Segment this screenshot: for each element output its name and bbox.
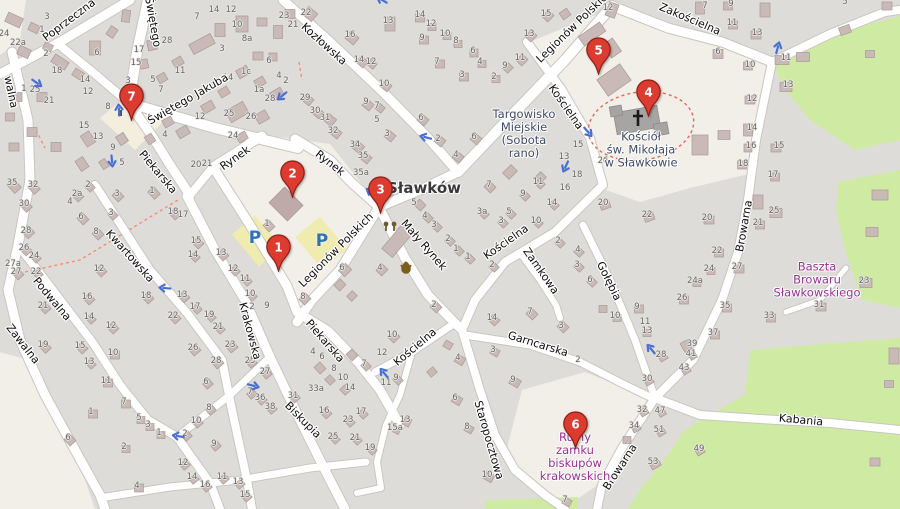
house-number: 7 <box>527 307 532 317</box>
house-number: 5 <box>136 413 141 423</box>
house-number: 12 <box>366 57 377 67</box>
house-number: 23 <box>343 415 354 425</box>
svg-text:6: 6 <box>571 418 579 432</box>
house-number: 21 <box>350 433 361 443</box>
house-number: 3 <box>114 189 119 199</box>
house-number: 15 <box>75 341 86 351</box>
house-number: 19 <box>204 310 215 320</box>
house-number: 11 <box>727 18 738 28</box>
house-number: 12 <box>106 321 117 331</box>
house-number: 13 <box>524 29 535 39</box>
house-number: 13 <box>177 290 188 300</box>
house-number: 7 <box>247 387 252 397</box>
oneway-arrow-icon <box>372 367 389 384</box>
house-number: 11 <box>533 177 544 187</box>
street-label-browarna: Browarna <box>733 199 755 253</box>
house-number: 23 <box>279 11 290 21</box>
poi-label-kosciol: Kościółśw. Mikołajaw Sławkowie <box>604 131 677 170</box>
house-number: 10 <box>108 348 119 358</box>
house-number: 16 <box>746 141 757 151</box>
house-number: 19 <box>38 340 49 350</box>
house-number: 33 <box>764 311 775 321</box>
house-number: 28 <box>265 94 276 104</box>
house-number: 12 <box>178 458 189 468</box>
house-number: 20 <box>702 213 713 223</box>
oneway-arrow-icon <box>416 135 432 148</box>
house-number: 4 <box>310 347 315 357</box>
oneway-arrow-icon <box>563 161 578 178</box>
house-number: 7 <box>361 359 366 369</box>
house-number: 2 <box>43 49 48 59</box>
house-number: 7 <box>374 101 379 111</box>
house-number: 11 <box>381 378 392 388</box>
house-number: 17 <box>134 45 145 55</box>
house-number: 6 <box>715 47 720 57</box>
house-number: 2 <box>249 302 254 312</box>
house-number: 32 <box>637 405 648 415</box>
street-label-świętego: Świętego <box>142 0 164 48</box>
street-label-garncarska: Garncarska <box>506 329 570 360</box>
house-number: 1 <box>21 84 26 94</box>
house-number: 7 <box>158 85 163 95</box>
poi-label-line: krakowskich <box>540 470 611 483</box>
house-number: 53 <box>648 457 659 467</box>
house-number: 13 <box>642 326 653 336</box>
house-number: 14 <box>354 55 365 65</box>
oneway-arrow-icon <box>169 435 185 447</box>
house-number: 34 <box>350 140 361 150</box>
house-number: 34 <box>629 421 640 431</box>
street-label-podwalna: Podwalna <box>30 275 74 324</box>
house-number: 21 <box>44 96 55 106</box>
house-number: 4 <box>162 130 167 140</box>
house-number: 16 <box>345 30 356 40</box>
house-number: 12 <box>426 19 437 29</box>
house-number: 21 <box>213 322 224 332</box>
oneway-arrow-icon <box>157 287 172 298</box>
house-number: 14 <box>80 75 91 85</box>
house-number: 16 <box>200 480 211 490</box>
map-marker-3[interactable]: 3 <box>367 176 394 214</box>
house-number: 14 <box>223 73 234 83</box>
street-label-browarna: Browarna <box>600 442 639 493</box>
house-number: 18 <box>141 291 152 301</box>
svg-text:4: 4 <box>644 86 652 100</box>
house-number: 18 <box>52 66 63 76</box>
street-label-świętego-jakuba: Świętego Jakuba <box>145 71 230 128</box>
house-number: 12 <box>228 264 239 274</box>
svg-text:5: 5 <box>594 44 602 58</box>
poi-label-line: Kościół <box>604 131 677 144</box>
house-number: 12 <box>226 5 237 15</box>
map-canvas[interactable]: PoprzecznawalnaŚwiętegoŚwiętego JakubaKo… <box>0 0 900 509</box>
house-number: 2 <box>445 234 450 244</box>
house-number: 26 <box>19 243 30 253</box>
house-number: 11 <box>217 472 228 482</box>
house-number: 10 <box>245 289 256 299</box>
house-number: 1 <box>149 186 154 196</box>
house-number: 20 <box>191 160 202 170</box>
oneway-arrow-icon <box>639 343 656 360</box>
street-label-poprzeczna: Poprzeczna <box>40 0 98 44</box>
poi-label-line: w Sławkowie <box>604 157 677 170</box>
house-number: 39 <box>687 339 698 349</box>
house-number: 31 <box>814 300 825 310</box>
house-number: 13 <box>783 80 794 90</box>
street-label-rynek: Rynek <box>313 148 348 179</box>
house-number: 22a <box>10 38 26 48</box>
house-number: 9 <box>520 189 525 199</box>
house-number: 2 <box>121 442 126 452</box>
house-number: 13 <box>383 16 394 26</box>
house-number: 5 <box>842 0 847 7</box>
house-number: 27a <box>5 259 21 269</box>
street-label-zawalna: Zawalna <box>3 322 42 367</box>
house-number: 11 <box>101 376 112 386</box>
poi-label-line: Miejskie <box>493 121 556 134</box>
house-number: 27 <box>732 262 743 272</box>
map-marker-2[interactable]: 2 <box>279 160 306 198</box>
map-overlay-layer: PoprzecznawalnaŚwiętegoŚwiętego JakubaKo… <box>0 0 900 509</box>
house-number: 15 <box>191 236 202 246</box>
house-number: 8 <box>206 403 211 413</box>
house-number: 2 <box>283 76 288 86</box>
house-number: 18 <box>738 159 749 169</box>
svg-text:7: 7 <box>127 90 135 104</box>
house-number: 26 <box>246 112 257 122</box>
house-number: 20 <box>598 198 609 208</box>
house-number: 14 <box>84 312 95 322</box>
poi-label-line: św. Mikołaja <box>604 144 677 157</box>
house-number: 22 <box>168 311 179 321</box>
house-number: 27 <box>11 267 22 277</box>
house-number: 26 <box>598 156 609 166</box>
house-number: 15 <box>240 490 251 500</box>
house-number: 14 <box>345 383 356 393</box>
house-number: 22 <box>712 246 723 256</box>
house-number: 7 <box>486 180 491 190</box>
house-number: 6 <box>339 263 344 273</box>
house-number: 13 <box>84 357 95 367</box>
house-number: 4 <box>477 57 482 67</box>
street-label-kozłowska: Kozłowska <box>299 20 350 68</box>
map-marker-6[interactable]: 6 <box>562 411 589 449</box>
house-number: 13 <box>752 28 763 38</box>
house-number: 14 <box>209 5 220 15</box>
house-number: 13 <box>216 248 227 258</box>
house-number: 24 <box>704 264 715 274</box>
street-label-kościelna: Kościelna <box>481 222 531 262</box>
poi-label-line: biskupów <box>540 457 611 470</box>
house-number: 2 <box>431 300 436 310</box>
house-number: 15 <box>131 58 142 68</box>
house-number: 3 <box>145 420 150 430</box>
house-number: 17 <box>356 407 367 417</box>
house-number: 15 <box>541 9 552 19</box>
house-number: 24a <box>687 276 703 286</box>
house-number: 7 <box>121 397 126 407</box>
house-number: 9 <box>502 61 507 71</box>
house-number: 9 <box>634 302 639 312</box>
house-number: 8 <box>93 227 98 237</box>
house-number: 2 <box>555 236 560 246</box>
house-number: 3 <box>431 220 436 230</box>
house-number: 3 <box>498 216 503 226</box>
house-number: 10 <box>379 79 390 89</box>
house-number: 6 <box>94 48 99 58</box>
house-number: 13 <box>93 132 104 142</box>
house-number: 2 <box>182 429 187 439</box>
house-number: 10 <box>482 470 493 480</box>
house-number: 13 <box>233 477 244 487</box>
house-number: 5 <box>411 198 416 208</box>
house-number: 1 <box>465 252 470 262</box>
house-number: 10 <box>191 416 202 426</box>
street-label-zakościelna: Zakościelna <box>657 0 722 38</box>
house-number: 6 <box>203 377 208 387</box>
house-number: 14 <box>547 198 558 208</box>
house-number: 14 <box>188 250 199 260</box>
street-label-kwartowska: Kwartowska <box>103 227 157 285</box>
house-number: 9 <box>510 375 515 385</box>
house-number: 1 <box>88 407 93 417</box>
house-number: 49 <box>694 444 705 454</box>
house-number: 12 <box>603 3 614 13</box>
house-number: 13 <box>559 152 570 162</box>
house-number: 26 <box>188 343 199 353</box>
map-marker-5[interactable]: 5 <box>585 37 612 75</box>
house-number: 4 <box>422 211 427 221</box>
street-label-kościelna: Kościelna <box>391 325 439 368</box>
parking-icon: P <box>249 228 261 248</box>
house-number: 2 <box>489 260 494 270</box>
street-label-mały-rynek: Mały Rynek <box>398 217 449 273</box>
svg-text:1: 1 <box>274 241 282 255</box>
house-number: 7 <box>562 495 567 505</box>
house-number: 9 <box>110 143 115 153</box>
house-number: 6 <box>319 352 324 362</box>
house-number: 12 <box>195 112 206 122</box>
house-number: 10 <box>232 20 243 30</box>
house-number: 32 <box>328 126 339 136</box>
house-number: 35 <box>358 151 369 161</box>
house-number: 6 <box>78 212 83 222</box>
house-number: 47 <box>655 406 666 416</box>
house-number: 11 <box>240 274 251 284</box>
house-number: 6 <box>418 113 423 123</box>
house-number: 27 <box>260 367 271 377</box>
house-number: 16 <box>319 406 330 416</box>
map-marker-7[interactable]: 7 <box>118 83 145 121</box>
house-number: 30 <box>642 374 653 384</box>
house-number: 23 <box>225 340 236 350</box>
street-label-piekarska: Piekarska <box>136 148 180 196</box>
house-number: 14 <box>747 123 758 133</box>
oneway-arrow-icon <box>370 0 387 12</box>
oneway-arrow-icon <box>766 38 779 54</box>
house-number: 9 <box>728 0 733 9</box>
house-number: 9 <box>363 97 368 107</box>
house-number: 3 <box>384 129 389 139</box>
house-number: 18 <box>168 207 179 217</box>
house-number: 4 <box>455 353 460 363</box>
house-number: 25 <box>328 432 339 442</box>
house-number: 8 <box>300 292 305 302</box>
house-number: 33a <box>308 384 324 394</box>
street-label-biskupia: Biskupia <box>282 399 324 441</box>
house-number: 2 <box>435 134 440 144</box>
house-number: 9 <box>211 439 216 449</box>
house-number: 32 <box>28 180 39 190</box>
house-number: 7 <box>702 1 707 11</box>
house-number: 23 <box>859 276 870 286</box>
house-number: 1 <box>39 25 44 35</box>
house-number: 15 <box>79 121 90 131</box>
house-number: 10 <box>387 330 398 340</box>
oneway-arrow-icon <box>584 120 601 137</box>
map-marker-1[interactable]: 1 <box>265 234 292 272</box>
house-number: 2 <box>575 355 580 365</box>
house-number: 9 <box>393 373 398 383</box>
house-number: 13 <box>400 415 411 425</box>
house-number: 6 <box>266 56 271 66</box>
house-number: 12 <box>747 94 758 104</box>
house-number: 3a <box>477 207 488 217</box>
house-number: 35 <box>720 301 731 311</box>
house-number: 8 <box>331 364 336 374</box>
house-number: 5 <box>506 207 511 217</box>
house-number: 3 <box>558 321 563 331</box>
house-number: 10 <box>745 60 756 70</box>
house-number: 22 <box>642 210 653 220</box>
house-number: 7 <box>434 57 439 67</box>
house-number: 3 <box>44 12 49 22</box>
house-number: 12 <box>94 264 105 274</box>
house-number: 5 <box>374 115 379 125</box>
house-number: 24 <box>29 251 40 261</box>
house-number: 17 <box>178 210 189 220</box>
house-number: 14 <box>487 313 498 323</box>
house-number: 29 <box>300 93 311 103</box>
house-number: 11 <box>781 53 792 63</box>
house-number: 3 <box>574 260 579 270</box>
house-number: 11 <box>640 317 651 327</box>
house-number: 15 <box>573 140 584 150</box>
house-number: 51 <box>654 425 665 435</box>
house-number: 14 <box>187 472 198 482</box>
house-number: 21 <box>38 301 49 311</box>
house-number: 18 <box>572 170 583 180</box>
house-number: 6 <box>65 433 70 443</box>
poi-label-line: Sławkowskiego <box>774 287 861 300</box>
house-number: 21 <box>288 20 299 30</box>
house-number: 3 <box>219 44 224 54</box>
house-number: 1 <box>156 428 161 438</box>
street-label-krakowska: Krakowska <box>236 301 264 361</box>
house-number: 14 <box>415 10 426 20</box>
house-number: 4 <box>377 263 382 273</box>
house-number: 15a <box>387 423 403 433</box>
house-number: 8 <box>105 102 110 112</box>
house-number: 19 <box>365 443 376 453</box>
house-number: 8 <box>453 36 458 46</box>
house-number: 1c <box>241 67 251 77</box>
house-number: 3 <box>459 70 464 80</box>
house-number: 6 <box>587 275 592 285</box>
house-number: 11 <box>175 66 186 76</box>
house-number: 4 <box>67 197 72 207</box>
house-number: 41 <box>686 349 697 359</box>
town-label: Sławków <box>387 179 461 197</box>
poi-label-line: Targowisko <box>493 108 556 121</box>
house-number: 38 <box>265 402 276 412</box>
house-number: 3 <box>490 345 495 355</box>
house-number: 2 <box>491 72 496 82</box>
house-number: 25 <box>245 356 256 366</box>
house-number: 4 <box>276 71 281 81</box>
poi-label-line: (Sobota <box>493 134 556 147</box>
oneway-arrow-icon <box>276 92 293 109</box>
house-number: 30 <box>19 199 30 209</box>
poi-label-line: Baszta <box>774 261 861 274</box>
house-number: 24 <box>228 131 239 141</box>
house-number: 6 <box>470 46 475 56</box>
house-number: 31 <box>320 113 331 123</box>
house-number: 2a <box>72 189 83 199</box>
house-number: 10 <box>440 29 451 39</box>
house-number: 28 <box>162 36 173 46</box>
house-number: 1a <box>254 85 265 95</box>
house-number: 15 <box>774 141 785 151</box>
svg-text:2: 2 <box>288 167 296 181</box>
parking-icon: P <box>316 231 328 251</box>
street-label-staropocztowa: Staropocztowa <box>472 399 507 481</box>
house-number: 21 <box>202 159 213 169</box>
house-number: 2 <box>85 180 90 190</box>
street-label-rynek: Rynek <box>217 143 252 173</box>
house-number: 9 <box>419 33 424 43</box>
street-label-legionów-polskich: Legionów Polskich <box>296 210 376 290</box>
house-number: 17 <box>768 170 779 180</box>
house-number: 9 <box>264 301 269 311</box>
street-label-zamkowa: Zamkowa <box>520 245 561 296</box>
house-number: 21 <box>753 218 764 228</box>
house-number: 11 <box>515 53 526 63</box>
poi-label-targowisko: TargowiskoMiejskie(Sobotarano) <box>493 108 556 160</box>
house-number: 28 <box>211 356 222 366</box>
street-label-gołębia: Gołębia <box>594 259 624 302</box>
house-number: 8a <box>242 34 253 44</box>
oneway-arrow-icon <box>31 71 48 87</box>
house-number: 5 <box>150 75 155 85</box>
house-number: 6 <box>471 132 476 142</box>
house-number: 28 <box>21 226 32 236</box>
poi-label-line: Browaru <box>774 274 861 287</box>
house-number: 3 <box>108 208 113 218</box>
house-number: 17 <box>190 302 201 312</box>
house-number: 6 <box>452 393 457 403</box>
oneway-arrow-icon <box>111 154 122 169</box>
street-label-kabania: Kabania <box>778 412 823 429</box>
house-number: 37 <box>708 328 719 338</box>
house-number: 26 <box>677 293 688 303</box>
house-number: 16 <box>560 183 571 193</box>
house-number: 1 <box>453 244 458 254</box>
house-number: 22 <box>301 8 312 18</box>
house-number: 12 <box>377 348 388 358</box>
map-marker-4[interactable]: 4 <box>635 79 662 117</box>
house-number: 5 <box>119 158 124 168</box>
